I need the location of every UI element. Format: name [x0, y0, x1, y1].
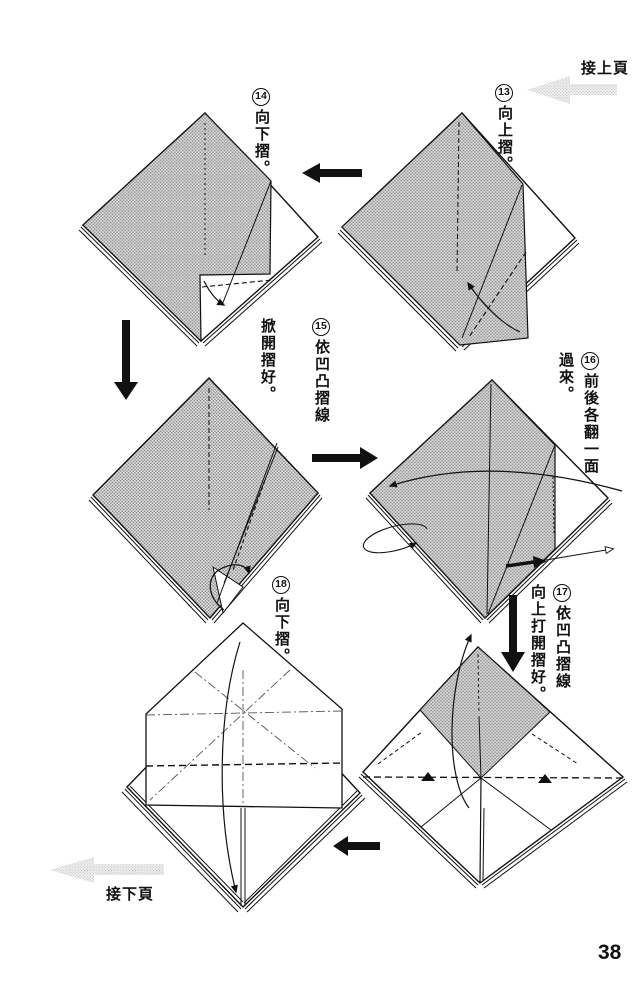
step-14-figure: [70, 105, 330, 351]
shaded-face: [83, 113, 271, 341]
page-number: 38: [598, 941, 621, 965]
origami-instruction-page: 接上頁 13向上摺。 14向下摺。: [0, 0, 638, 1000]
prev-page-arrow-icon: [515, 56, 638, 106]
step-17-figure: [352, 628, 638, 912]
step-14-number-badge: 14: [252, 88, 270, 106]
pull-out-arrow: [546, 549, 612, 560]
step-15-number-badge: 15: [312, 318, 330, 336]
step-18-number-badge: 18: [272, 576, 290, 594]
shaded-face: [370, 380, 555, 618]
step-15-figure: [75, 368, 330, 630]
shaded-face: [342, 113, 528, 345]
step-16-figure: [350, 372, 638, 630]
step-17-number-badge: 17: [553, 584, 571, 602]
step-16-number-badge: 16: [581, 352, 599, 370]
flow-arrow-17-to-18: [328, 834, 384, 858]
unfolded-flap-outline: [146, 623, 342, 808]
next-page-link-label: 接下頁: [106, 883, 154, 904]
step-13-figure: [330, 100, 592, 356]
